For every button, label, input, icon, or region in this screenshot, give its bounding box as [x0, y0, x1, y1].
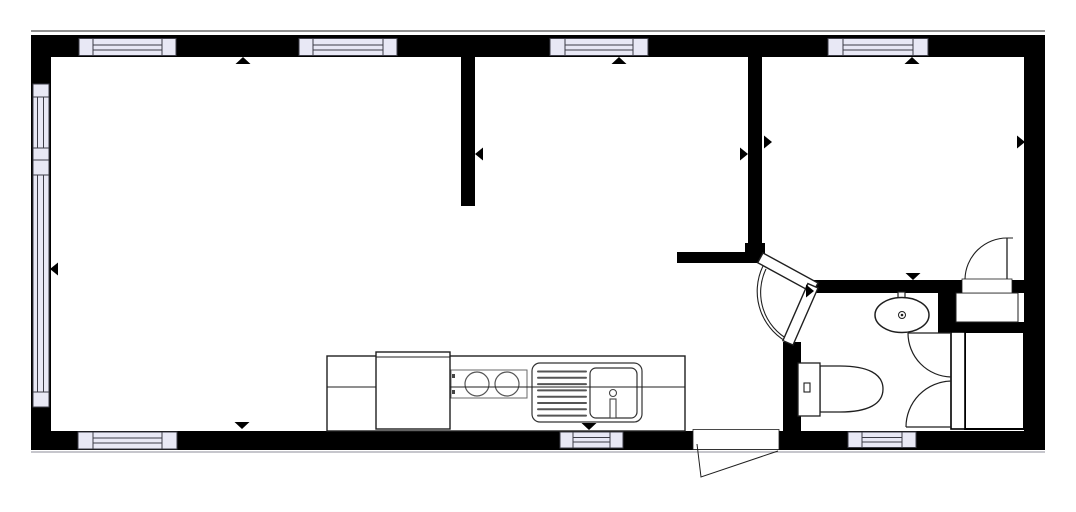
- window-bottom-living: [78, 432, 177, 449]
- floor-plan-canvas: [0, 0, 1076, 512]
- toilet-flush-button: [804, 383, 810, 392]
- window-top-bedroom: [828, 39, 928, 56]
- shower-pivot-panel: [951, 332, 965, 429]
- window-frame: [848, 432, 916, 448]
- window-sill: [33, 160, 49, 175]
- window-bathroom: [848, 432, 916, 448]
- outer-wall-right: [1024, 35, 1045, 450]
- bedroom-door-opening: [962, 279, 1012, 293]
- stove-knob: [452, 374, 455, 378]
- window-frame: [299, 39, 397, 56]
- window-pane: [33, 97, 49, 148]
- window-frame: [560, 432, 623, 448]
- bathroom-top-wall: [810, 280, 941, 293]
- stove: [451, 370, 527, 398]
- window-sill: [33, 84, 49, 97]
- hall-niche: [956, 293, 1018, 322]
- partition-living-middle: [461, 57, 475, 206]
- shower-box: [965, 332, 1024, 429]
- window-frame: [79, 39, 176, 56]
- partition-middle-bedroom: [748, 57, 762, 252]
- stove-knob: [452, 390, 455, 394]
- refrigerator-body: [376, 352, 450, 429]
- window-top-living-1: [79, 39, 176, 56]
- window-kitchen: [560, 432, 623, 448]
- window-pane: [33, 175, 49, 392]
- refrigerator: [376, 352, 450, 429]
- toilet-bowl: [820, 366, 883, 412]
- kitchen-sink: [532, 363, 642, 422]
- floor-plan-svg: [0, 0, 1076, 512]
- washbasin-drain-dot: [901, 314, 904, 317]
- window-top-middle: [550, 39, 648, 56]
- sink-faucet-bar: [610, 399, 616, 418]
- entry-door-opening: [693, 430, 779, 450]
- hall-stub-wall: [677, 252, 765, 263]
- window-sill: [33, 148, 49, 160]
- kitchen: [327, 352, 685, 431]
- window-left-assembly: [33, 84, 49, 407]
- sink-faucet-handle: [610, 390, 617, 397]
- window-sill: [33, 392, 49, 407]
- window-top-living-2: [299, 39, 397, 56]
